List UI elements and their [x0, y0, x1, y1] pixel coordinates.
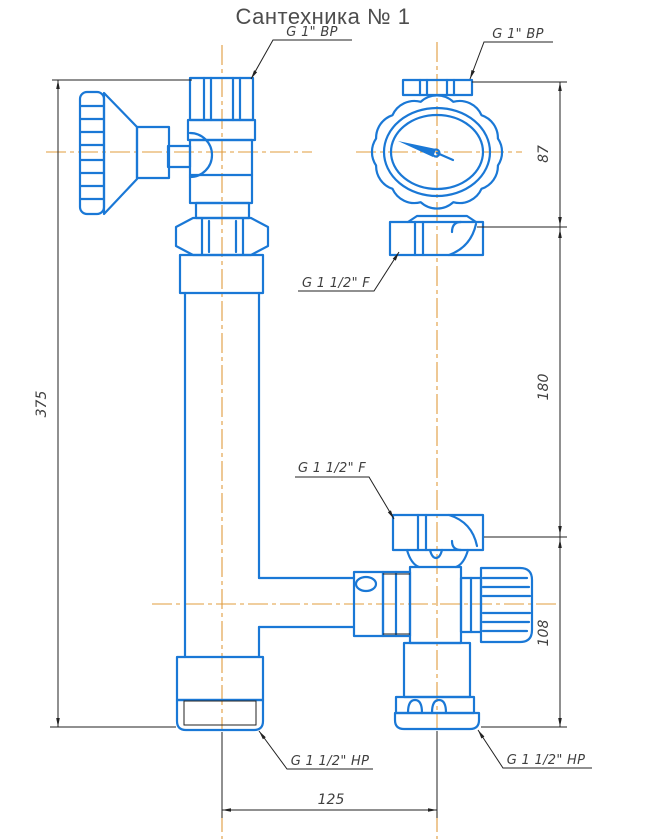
label-top-left-port: G 1" BP — [251, 25, 352, 79]
pipe-bottom-thread — [184, 701, 256, 725]
branch-pipe — [259, 578, 354, 627]
thermo-top-nut-facets — [418, 515, 477, 550]
dimension-125: 125 — [318, 792, 345, 808]
valve-stem-coupler — [168, 146, 190, 167]
gauge-nut-facets — [415, 222, 476, 255]
port-label: G 1 1/2" F — [302, 276, 370, 291]
pipe-bottom-coupling — [177, 657, 263, 700]
dimension-87: 87 — [536, 145, 552, 163]
thermo-lower-nut-facets — [408, 700, 446, 713]
dimension-375: 375 — [34, 391, 50, 418]
handwheel-cone — [104, 93, 137, 214]
handwheel — [80, 92, 104, 214]
thermo-top-nut — [393, 515, 483, 550]
port-label: G 1 1/2" HP — [291, 754, 370, 769]
thermostatic-valve — [354, 515, 532, 729]
handwheel-valve — [80, 78, 255, 214]
label-gauge-union: G 1 1/2" F — [298, 252, 399, 291]
port-label: G 1 1/2" F — [298, 461, 366, 476]
label-bottom-right-port: G 1 1/2" HP — [478, 730, 592, 768]
label-bottom-left-port: G 1 1/2" HP — [259, 731, 373, 769]
dimension-108: 108 — [536, 620, 552, 647]
dimension-gauge-height: 87 — [472, 82, 567, 227]
dimension-bottom-width: 125 — [222, 731, 437, 818]
port-label: G 1" BP — [492, 27, 543, 42]
port-label: G 1 1/2" HP — [507, 753, 586, 768]
gauge-needle — [398, 141, 436, 157]
thermo-union-tab — [356, 577, 376, 591]
dimension-middle-span: 180 — [484, 227, 567, 537]
technical-drawing: Сантехника № 1 — [0, 0, 645, 839]
thermo-body — [410, 567, 461, 643]
dimension-180: 180 — [536, 374, 552, 401]
label-top-right-port: G 1" BP — [470, 27, 553, 79]
valve-body — [190, 140, 252, 203]
label-valve-union: G 1 1/2" F — [295, 461, 394, 519]
port-label: G 1" BP — [286, 25, 337, 40]
